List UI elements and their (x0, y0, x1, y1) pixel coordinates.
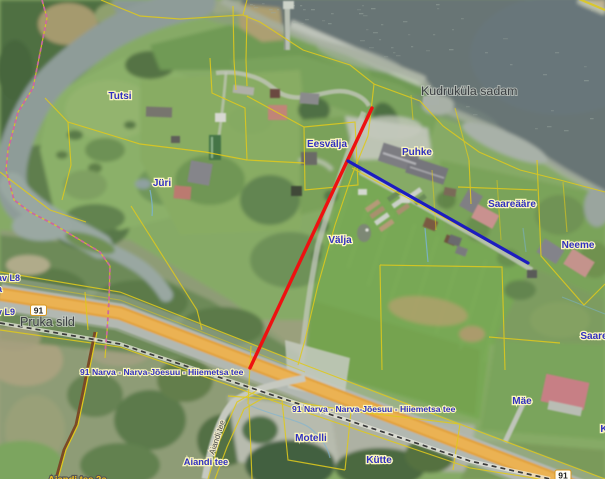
svg-text:Puhke: Puhke (402, 147, 432, 158)
svg-text:Saareääre: Saareääre (488, 199, 536, 210)
svg-text:Saare: Saare (580, 331, 605, 342)
svg-text:91: 91 (558, 471, 568, 479)
svg-text:Mäe: Mäe (512, 396, 532, 407)
svg-text:Aiandi tee: Aiandi tee (184, 457, 228, 467)
svg-text:Tutsi: Tutsi (108, 91, 131, 102)
svg-text:Kütte: Kütte (366, 455, 392, 466)
svg-text:91: 91 (34, 306, 44, 316)
svg-text:v L9: v L9 (0, 307, 15, 317)
svg-text:Kü: Kü (600, 424, 605, 435)
svg-text:91 Narva - Narva-Jõesuu - Hiie: 91 Narva - Narva-Jõesuu - Hiiemetsa tee (292, 404, 456, 414)
svg-text:Neeme: Neeme (562, 240, 595, 251)
svg-text:Kudruküla sadam: Kudruküla sadam (421, 84, 517, 98)
svg-text:Motelli: Motelli (295, 433, 327, 444)
svg-text:91 Narva - Narva-Jõesuu - Hiie: 91 Narva - Narva-Jõesuu - Hiiemetsa tee (80, 367, 244, 377)
svg-text:Aiandi tee 2a: Aiandi tee 2a (48, 475, 107, 479)
svg-text:av L8: av L8 (0, 273, 20, 283)
svg-text:Pruka sild: Pruka sild (20, 315, 75, 329)
svg-text:Jüri: Jüri (153, 178, 172, 189)
svg-text:Välja: Välja (328, 235, 352, 246)
svg-text:Eesvälja: Eesvälja (307, 139, 347, 150)
